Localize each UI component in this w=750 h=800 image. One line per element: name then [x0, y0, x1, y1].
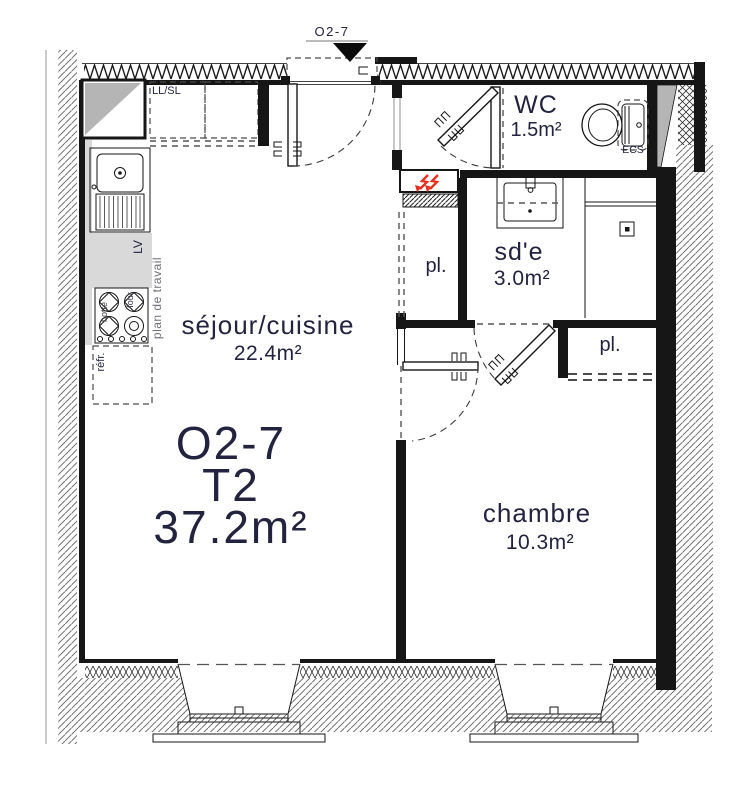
closet-chambre: pl. [568, 334, 656, 380]
chambre-label: chambre [483, 498, 591, 528]
closet-chambre-label: pl. [599, 334, 620, 356]
wc-area: 1.5m² [510, 119, 561, 141]
sde-door [495, 325, 555, 385]
left-wall [79, 80, 85, 663]
hood-label: hotte [99, 302, 109, 322]
chambre-door [403, 362, 478, 370]
sde-door-group [474, 324, 555, 385]
entry-arrow-icon [333, 43, 367, 62]
fridge-label: réfr. [95, 353, 107, 372]
llsl-label: LL/SL [152, 85, 181, 97]
lv-label: LV [131, 240, 145, 254]
water-heater-ecs-label: ECS [622, 144, 644, 156]
sde-label: sd'e [494, 238, 543, 266]
sde-area: 3.0m² [494, 267, 550, 290]
sejour-chambre-wall [396, 440, 406, 663]
floor-plan-svg: O2-7 LL/SL LV plan de travail [0, 0, 750, 800]
worktop-label: plan de travail [150, 257, 164, 339]
kitchen-sink [90, 148, 150, 232]
floor-plan-page: O2-7 LL/SL LV plan de travail [0, 0, 750, 800]
sejour-label: séjour/cuisine [182, 310, 355, 340]
shower [585, 176, 658, 318]
corner-shaft-box [82, 80, 145, 138]
entry-marker: O2-7 [306, 24, 368, 62]
unit-area: 37.2m² [153, 501, 308, 553]
closet-sde: pl. [399, 212, 447, 318]
chambre-door-group [403, 353, 478, 441]
entry [274, 58, 381, 166]
vestibule-wall [392, 82, 402, 170]
radiator-box [400, 170, 458, 207]
sde-room: sd'e 3.0m² [494, 171, 658, 318]
wc-door-group [435, 87, 503, 168]
toilet [582, 100, 648, 150]
cooktop: hotte four [95, 288, 148, 343]
wc-door-swing [441, 146, 495, 168]
entry-door [288, 84, 297, 166]
labels: séjour/cuisine 22.4m² O2-7 T2 37.2m² cha… [153, 310, 591, 554]
chambre-door-swing [412, 366, 478, 441]
wc-room: ECS WC 1.5m² [510, 91, 648, 156]
oven-label: four [125, 292, 135, 308]
entry-door-swing [293, 84, 375, 166]
exterior-hatch [46, 50, 713, 744]
duct-shaft [657, 85, 677, 167]
unit-marker-label: O2-7 [315, 24, 350, 39]
washbasin [497, 171, 563, 228]
chambre-area: 10.3m² [506, 531, 574, 554]
corner-column [694, 62, 705, 172]
closet-sde-label: pl. [425, 255, 446, 277]
shower-drain-icon [625, 227, 630, 232]
sde-door-swing [474, 328, 497, 381]
wc-label: WC [514, 91, 558, 119]
sejour-area: 22.4m² [234, 342, 302, 365]
